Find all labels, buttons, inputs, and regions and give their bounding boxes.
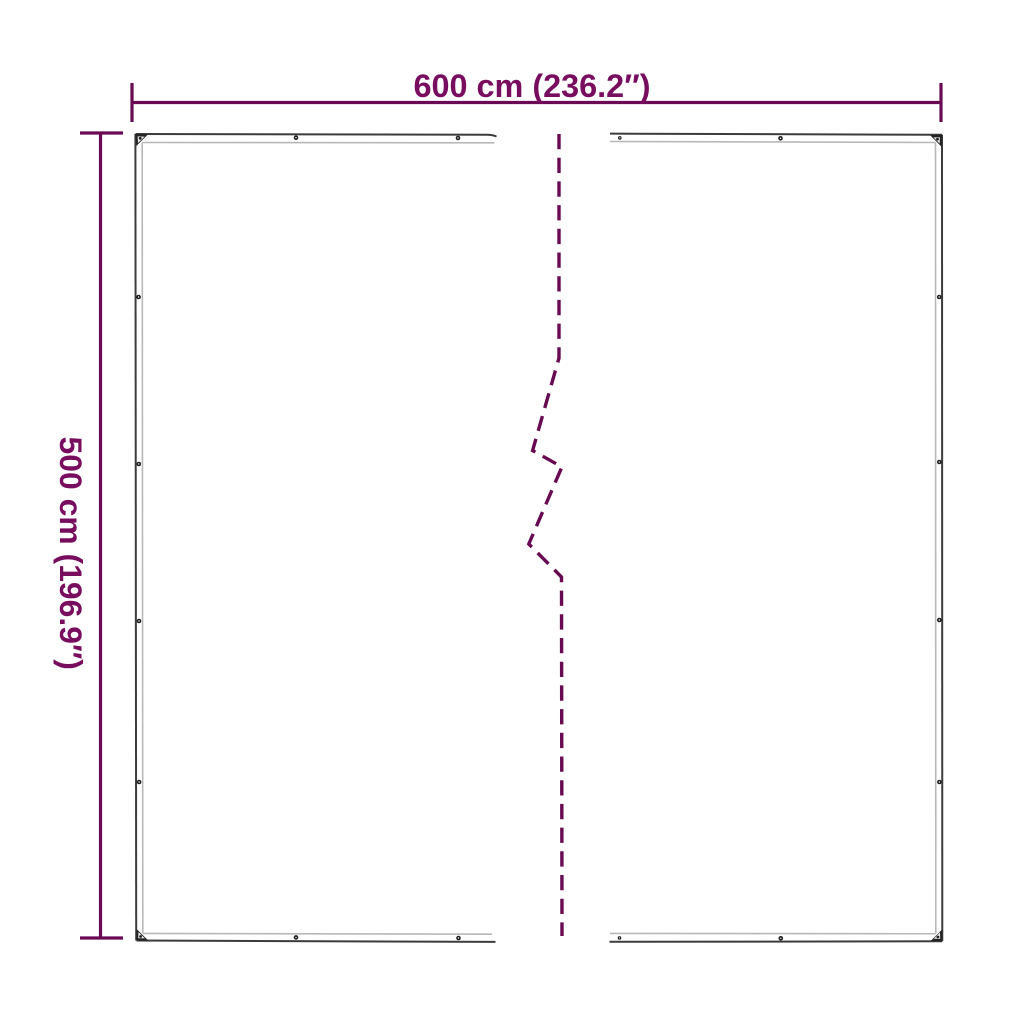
svg-text:600 cm (236.2″): 600 cm (236.2″): [414, 68, 651, 104]
svg-text:500 cm (196.9″): 500 cm (196.9″): [53, 437, 89, 670]
